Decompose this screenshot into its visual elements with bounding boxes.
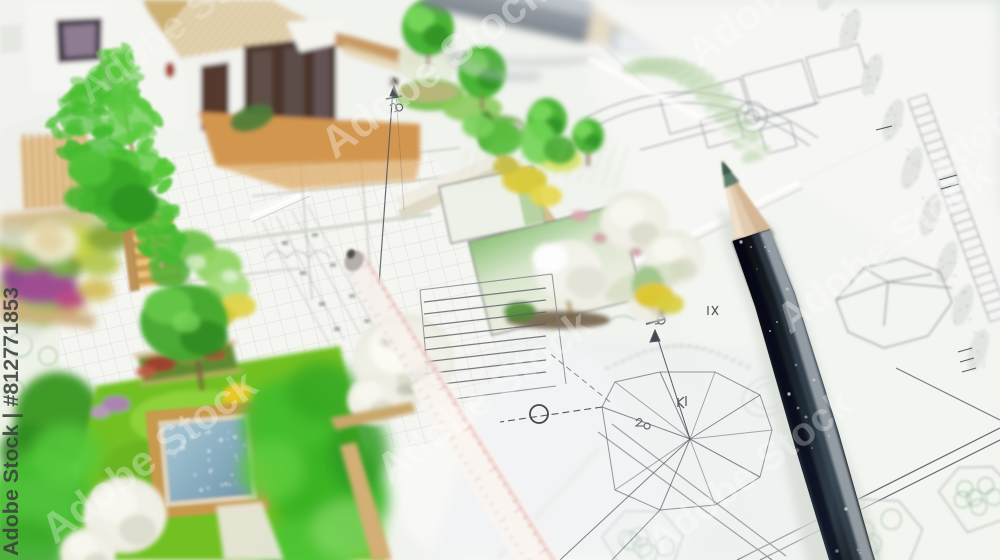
svg-text:Adobe Stock | #812771853: Adobe Stock | #812771853 [0,287,23,556]
